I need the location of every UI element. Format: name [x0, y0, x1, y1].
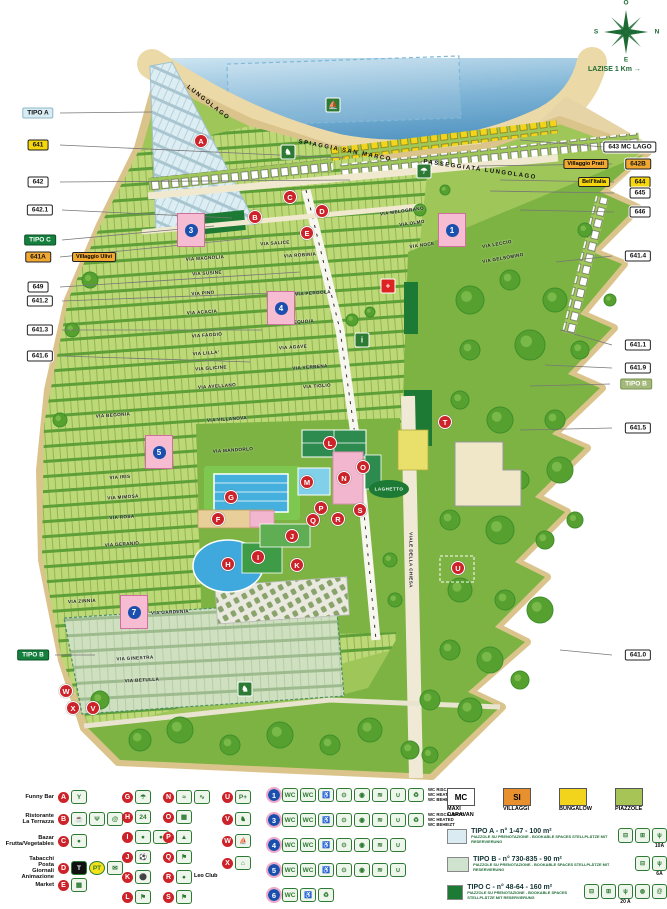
legend-letter-icons: ▦: [176, 810, 192, 824]
compass-south: S: [594, 29, 598, 36]
legend-wc-row: 3 WCWC♿⊙◉≋∪♻ WC RISCALDATO WC HEATED WC …: [268, 813, 464, 828]
wcchem-icon: WC: [300, 788, 316, 802]
legend-letter-row: W ⛵: [222, 834, 253, 848]
car-icon: ⊟: [584, 884, 599, 899]
car-icon: ⊟: [635, 856, 650, 871]
legend-letter-badge: D: [58, 863, 69, 874]
at-icon: @: [107, 812, 123, 826]
cart-icon: ▦: [71, 878, 87, 892]
compass-east: E: [624, 57, 628, 64]
legend-letter-icons: ⚽: [135, 850, 151, 864]
wc-icon: WC: [282, 888, 298, 902]
legend-letter-badge: X: [222, 858, 233, 869]
legend-letter-row: Q ⚑: [163, 850, 194, 864]
legend-service-icons: ●: [71, 834, 87, 848]
legend-letter-row: V ♞: [222, 812, 253, 826]
legend-letter-icons: ⛵: [235, 834, 251, 848]
legend-swatch-code: SI: [504, 789, 530, 805]
amp-rating: 20 A: [620, 899, 630, 905]
caravan-icon: ⊞: [601, 884, 616, 899]
legend-letter-icons: ⚑: [176, 890, 192, 904]
legend-service-icons: ▦: [71, 878, 87, 892]
legend-tipo-icons: ⊟⊞ψ10A: [618, 828, 667, 849]
compass-west: O: [623, 0, 628, 7]
legend-wc-icons: WCWC♿⊙◉≋∪♻: [282, 813, 424, 827]
legend-letter-badge: V: [222, 814, 233, 825]
legend-letter-badge: G: [122, 792, 133, 803]
legend-wc-row: 6 WC♿♻: [268, 888, 338, 902]
legend-letter-row: P ▲: [163, 830, 194, 844]
legend-wc-icons: WCWC♿⊙◉≋∪: [282, 838, 406, 852]
legend-swatch: MC MAXI CARAVAN: [447, 788, 475, 819]
dryer-icon: ≋: [372, 813, 388, 827]
baby-icon: ⊙: [336, 788, 352, 802]
arrow-right-icon: →: [634, 66, 640, 73]
legend-tipo-subtitle: PIAZZOLE SU PRENOTAZIONE - BOOKABLE SPAC…: [473, 863, 627, 872]
horse-icon: ♞: [235, 812, 251, 826]
legend-service-label: Funny Bar: [2, 794, 54, 800]
apple-icon: ●: [71, 834, 87, 848]
wheelchair-icon: ♿: [318, 788, 334, 802]
legend-tipo-row: TIPO B - n° 730-835 - 90 m² PIAZZOLE SU …: [447, 856, 667, 877]
wc-icon: WC: [282, 788, 298, 802]
legend-letter-icons: ⚑: [176, 850, 192, 864]
legend-swatch-label: MAXI CARAVAN: [447, 807, 474, 819]
legend-service-label: Market: [2, 882, 54, 888]
legend-swatch: BUNGALOW: [559, 788, 592, 813]
wc-icon: WC: [282, 863, 298, 877]
sink-icon: ∪: [390, 838, 406, 852]
legend-letter-row: L ⚑: [122, 890, 153, 904]
soccer-icon: ⚽: [135, 850, 151, 864]
legend-service-row: Bazar Frutta/Vegetables C ●: [2, 834, 87, 848]
leo-icon: ●: [176, 870, 192, 884]
baby-icon: ⊙: [336, 863, 352, 877]
legend-wc-row: 4 WCWC♿⊙◉≋∪: [268, 838, 410, 852]
legend-letter-badge: A: [58, 792, 69, 803]
legend-letter-row: G ☂: [122, 790, 153, 804]
legend-tipo-swatch: [447, 885, 463, 900]
legend-letter-icons: ≈∿: [176, 790, 210, 804]
legend-letter-row: R ● Leo Club: [163, 870, 218, 884]
dryer-icon: ≋: [372, 863, 388, 877]
tennis-icon: ⚑: [135, 890, 151, 904]
legend-tipo-row: TIPO A - n° 1-47 - 100 m² PIAZZOLE SU PR…: [447, 828, 667, 849]
wheelchair-icon: ♿: [300, 888, 316, 902]
legend-letter-icons: 24: [135, 810, 151, 824]
legend-letter-badge: P: [163, 832, 174, 843]
coffee-icon: ☕: [71, 812, 87, 826]
caravan-icon: ⊞: [635, 828, 650, 843]
tabacchi-icon: T: [71, 861, 87, 875]
sink-icon: ∪: [390, 788, 406, 802]
legend-letter-icons: ⚑: [135, 890, 151, 904]
waste-icon: ♻: [408, 788, 424, 802]
legend-letter-icons: ●: [176, 870, 192, 884]
legend-letter-badge: C: [58, 836, 69, 847]
legend-letter-badge: S: [163, 892, 174, 903]
legend-letter-badge: E: [58, 880, 69, 891]
legend-tipo-subtitle: PIAZZOLE SU PRENOTAZIONE - BOOKABLE SPAC…: [471, 835, 610, 844]
legend-letter-badge: B: [58, 814, 69, 825]
legend-service-row: Ristorante La Terrazza B ☕Ψ@: [2, 812, 123, 826]
waste-icon: ♻: [408, 813, 424, 827]
legend-wc-row: 1 WCWC♿⊙◉≋∪♻ WC RISCALDATO WC HEATED WC …: [268, 788, 464, 803]
legend-letter-icons: ♞: [235, 812, 251, 826]
charging-icon: P+: [235, 790, 251, 804]
washer-icon: ◉: [354, 863, 370, 877]
legend-swatch-code: MC: [448, 789, 474, 805]
tipo-c-strip-2: [404, 282, 418, 334]
legend-letter-row: X ⌂: [222, 856, 253, 870]
legend-wc-icons: WCWC♿⊙◉≋∪♻: [282, 788, 424, 802]
legend-swatch: PIAZZOLE: [615, 788, 643, 813]
legend-wc-number: 1: [268, 789, 280, 801]
slide-icon: ∿: [194, 790, 210, 804]
plug-icon: ψ: [652, 856, 667, 871]
legend-wc-icons: WC♿♻: [282, 888, 334, 902]
cutlery-icon: Ψ: [89, 812, 105, 826]
pt-icon: PT: [89, 861, 105, 875]
legend-letter-badge: U: [222, 792, 233, 803]
camper-icon: ⌂: [235, 856, 251, 870]
legend-letter-badge: O: [163, 812, 174, 823]
campsite-map-page: LUNGOLAGOSPIAGGIA SAN MARCOPASSEGGIATA L…: [0, 0, 667, 909]
amp-rating: 6A: [656, 871, 662, 877]
minigolf-icon: ⚑: [176, 890, 192, 904]
legend-swatch-code: [560, 789, 586, 805]
playground-icon: ▲: [176, 830, 192, 844]
distance-label: LAZISE 1 Km →: [588, 66, 640, 73]
plug-icon: ψ: [618, 884, 633, 899]
wheelchair-icon: ♿: [318, 838, 334, 852]
legend-letter-badge: W: [222, 836, 233, 847]
legend-service-icons: ☕Ψ@: [71, 812, 123, 826]
legend-service-label: Bazar Frutta/Vegetables: [2, 835, 54, 847]
legend-letter-badge: I: [122, 832, 133, 843]
wc-icon: WC: [282, 813, 298, 827]
sink-icon: ∪: [390, 813, 406, 827]
legend-letter-badge: J: [122, 852, 133, 863]
legend-service-row: Market E ▦: [2, 878, 87, 892]
gym-icon: ⚑: [176, 850, 192, 864]
washer-icon: ◉: [354, 788, 370, 802]
boat-icon: ⛵: [235, 834, 251, 848]
beach-icon: ☂: [135, 790, 151, 804]
wcchem-icon: WC: [300, 838, 316, 852]
legend-swatch-code: [616, 789, 642, 805]
legend-letter-row: J ⚽: [122, 850, 153, 864]
car-icon: ⊟: [618, 828, 633, 843]
legend-service-label: Ristorante La Terrazza: [2, 813, 54, 825]
legend-wc-number: 5: [268, 864, 280, 876]
legend-letter-row: S ⚑: [163, 890, 194, 904]
legend-letter-badge: R: [163, 872, 174, 883]
legend-service-row: Tabacchi Posta Giornali Animazione D TPT…: [2, 856, 123, 880]
legend-letter-extra-label: Leo Club: [194, 874, 218, 880]
legend-tipo-icons: ⊟ψ6A: [635, 856, 667, 877]
legend-tipo-swatch: [447, 829, 467, 844]
legend-letter-row: K ⚫: [122, 870, 153, 884]
legend-tipo-swatch: [447, 857, 469, 872]
wcchem-icon: WC: [300, 813, 316, 827]
legend-tipo-row: TIPO C - n° 48-64 - 160 m² PIAZZOLE SU P…: [447, 884, 667, 905]
legend-tipo-icons: ⊟⊞ψ20 A◍@: [584, 884, 667, 905]
legend-service-row: Funny Bar A Y: [2, 790, 87, 804]
waste-icon: ♻: [318, 888, 334, 902]
wheelchair-icon: ♿: [318, 863, 334, 877]
legend-wc-icons: WCWC♿⊙◉≋∪: [282, 863, 406, 877]
bocce-icon: ⚫: [135, 870, 151, 884]
legend-swatch-label: PIAZZOLE: [615, 807, 642, 813]
sink-icon: ∪: [390, 863, 406, 877]
clock24-icon: 24: [135, 810, 151, 824]
legend-swatch: SI VILLAGGI: [503, 788, 531, 813]
wcchem-icon: WC: [300, 863, 316, 877]
legend-letter-badge: Q: [163, 852, 174, 863]
legend-letter-icons: ⌂: [235, 856, 251, 870]
stalls-icon: ▦: [176, 810, 192, 824]
legend-letter-row: H 24: [122, 810, 153, 824]
amp-rating: 10A: [655, 843, 664, 849]
pool-icon: ≈: [176, 790, 192, 804]
legend-wc-number: 3: [268, 814, 280, 826]
plug-icon: ψ: [652, 828, 667, 843]
cocktail-icon: Y: [71, 790, 87, 804]
sat-icon: ◍: [635, 884, 650, 899]
legend-letter-icons: ▲: [176, 830, 192, 844]
dryer-icon: ≋: [372, 788, 388, 802]
sport-icon: ●: [135, 830, 151, 844]
at-icon: @: [652, 884, 667, 899]
wheelchair-icon: ♿: [318, 813, 334, 827]
legend-service-icons: Y: [71, 790, 87, 804]
washer-icon: ◉: [354, 838, 370, 852]
washer-icon: ◉: [354, 813, 370, 827]
wc-icon: WC: [282, 838, 298, 852]
map-terrain: [0, 0, 667, 780]
news-icon: ✉: [107, 861, 123, 875]
baby-icon: ⊙: [336, 838, 352, 852]
legend-service-label: Tabacchi Posta Giornali Animazione: [2, 856, 54, 880]
baby-icon: ⊙: [336, 813, 352, 827]
legend-letter-badge: K: [122, 872, 133, 883]
legend-wc-number: 6: [268, 889, 280, 901]
legend-wc-number: 4: [268, 839, 280, 851]
compass-rose: [598, 4, 654, 60]
legend-swatch-label: VILLAGGI: [503, 807, 529, 813]
compass-north: N: [655, 29, 660, 36]
legend-service-icons: TPT✉: [71, 861, 123, 875]
dryer-icon: ≋: [372, 838, 388, 852]
legend-tipo-subtitle: PIAZZOLE SU PRENOTAZIONE - BOOKABLE SPAC…: [467, 891, 576, 900]
legend-letter-icons: ⚫: [135, 870, 151, 884]
legend: Funny Bar A Y Ristorante La Terrazza B ☕…: [0, 782, 667, 909]
legend-swatch-label: BUNGALOW: [559, 807, 592, 813]
legend-wc-row: 5 WCWC♿⊙◉≋∪: [268, 863, 410, 877]
legend-letter-row: O ▦: [163, 810, 194, 824]
legend-letter-icons: ☂: [135, 790, 151, 804]
legend-letter-badge: N: [163, 792, 174, 803]
legend-letter-badge: L: [122, 892, 133, 903]
legend-letter-row: N ≈∿: [163, 790, 212, 804]
legend-letter-badge: H: [122, 812, 133, 823]
legend-letter-icons: P+: [235, 790, 251, 804]
legend-letter-row: U P+: [222, 790, 253, 804]
